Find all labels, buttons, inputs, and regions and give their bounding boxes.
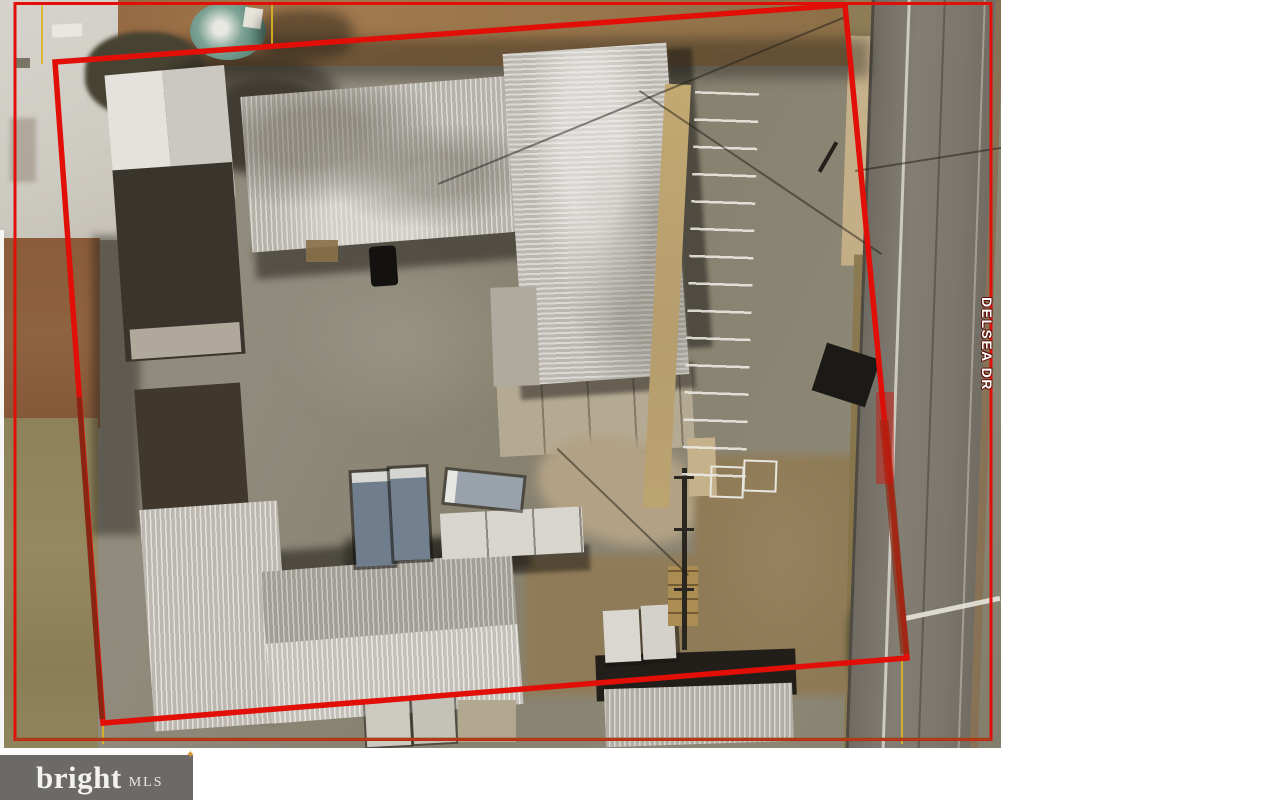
boundary-highlight-patch — [876, 392, 894, 484]
inner-parcel-boundary — [55, 5, 907, 723]
brightmls-wordmark: bright — [36, 762, 122, 793]
aerial-photo: DELSEA DR — [0, 0, 1001, 748]
brightmls-watermark: bright ✦ MLS — [0, 755, 193, 800]
sparkle-icon: ✦ — [186, 748, 195, 761]
brightmls-suffix: MLS — [129, 775, 164, 791]
street-name-label: DELSEA DR — [979, 297, 995, 447]
listing-photo-page: DELSEA DR bright ✦ MLS — [0, 0, 1280, 800]
outer-boundary — [15, 4, 991, 740]
boundary-overlay — [0, 0, 1001, 748]
inner-boundary-dark-left — [79, 397, 102, 719]
